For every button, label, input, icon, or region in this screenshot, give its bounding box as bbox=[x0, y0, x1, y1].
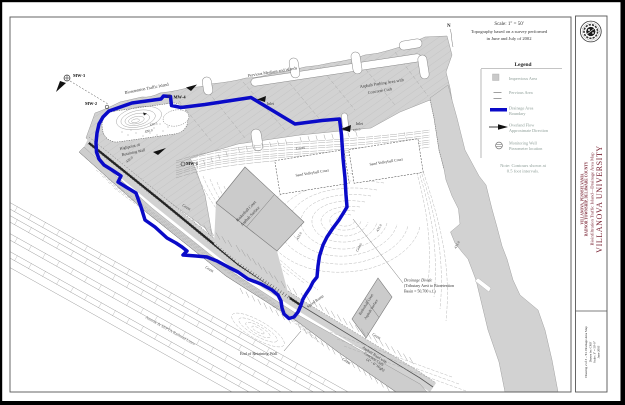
svg-text:N: N bbox=[447, 24, 451, 29]
svg-text:Note: Contours shown at: Note: Contours shown at bbox=[500, 163, 547, 168]
svg-text:Piezometer location: Piezometer location bbox=[509, 146, 543, 151]
svg-text:MW-4: MW-4 bbox=[174, 95, 187, 100]
svg-text:Scale: 1" = 50': Scale: 1" = 50' bbox=[494, 22, 523, 27]
svg-text:MW-2: MW-2 bbox=[85, 101, 97, 106]
svg-text:Approximate Direction: Approximate Direction bbox=[509, 128, 549, 133]
svg-text:Impervious Area: Impervious Area bbox=[509, 76, 537, 81]
svg-text:in June and July of 2002: in June and July of 2002 bbox=[486, 36, 532, 41]
svg-text:(Tributary Area to Bioretentio: (Tributary Area to Bioretention bbox=[404, 283, 454, 288]
svg-text:VILLANOVA, PENNSYLVANIA: VILLANOVA, PENNSYLVANIA bbox=[581, 173, 585, 224]
svg-text:Inlet: Inlet bbox=[267, 102, 275, 106]
svg-text:MW-3: MW-3 bbox=[73, 73, 86, 78]
svg-text:Overland Flow: Overland Flow bbox=[509, 123, 534, 128]
svg-text:Topography based on a survey p: Topography based on a survey performed bbox=[471, 29, 548, 34]
svg-text:Boundary: Boundary bbox=[509, 111, 526, 116]
svg-text:MW-1: MW-1 bbox=[186, 161, 198, 166]
svg-text:Inlet: Inlet bbox=[356, 122, 364, 126]
svg-text:June 2003: June 2003 bbox=[597, 345, 601, 358]
svg-text:VILLANOVA UNIVERSITY: VILLANOVA UNIVERSITY bbox=[595, 145, 604, 253]
svg-text:Drainage Area: Drainage Area bbox=[509, 106, 533, 111]
svg-text:End of Retaining Wall: End of Retaining Wall bbox=[240, 351, 278, 356]
svg-text:Legend: Legend bbox=[514, 62, 531, 68]
svg-text:Drainage Divide: Drainage Divide bbox=[403, 278, 432, 283]
svg-text:Bioinfiltration Traffic Island: Bioinfiltration Traffic Island—Drainage … bbox=[590, 152, 595, 246]
svg-text:Drawing 2 of 3 – T.I. Drainage: Drawing 2 of 3 – T.I. Drainage Area Map bbox=[584, 326, 588, 378]
svg-text:0.5 foot intervals.: 0.5 foot intervals. bbox=[507, 169, 539, 174]
svg-text:Pervious Area: Pervious Area bbox=[509, 90, 533, 95]
svg-text:RADNOR TOWNSHIP, DELAWARE COUN: RADNOR TOWNSHIP, DELAWARE COUNTY bbox=[585, 161, 589, 236]
svg-text:Monitoring Well: Monitoring Well bbox=[509, 141, 538, 146]
